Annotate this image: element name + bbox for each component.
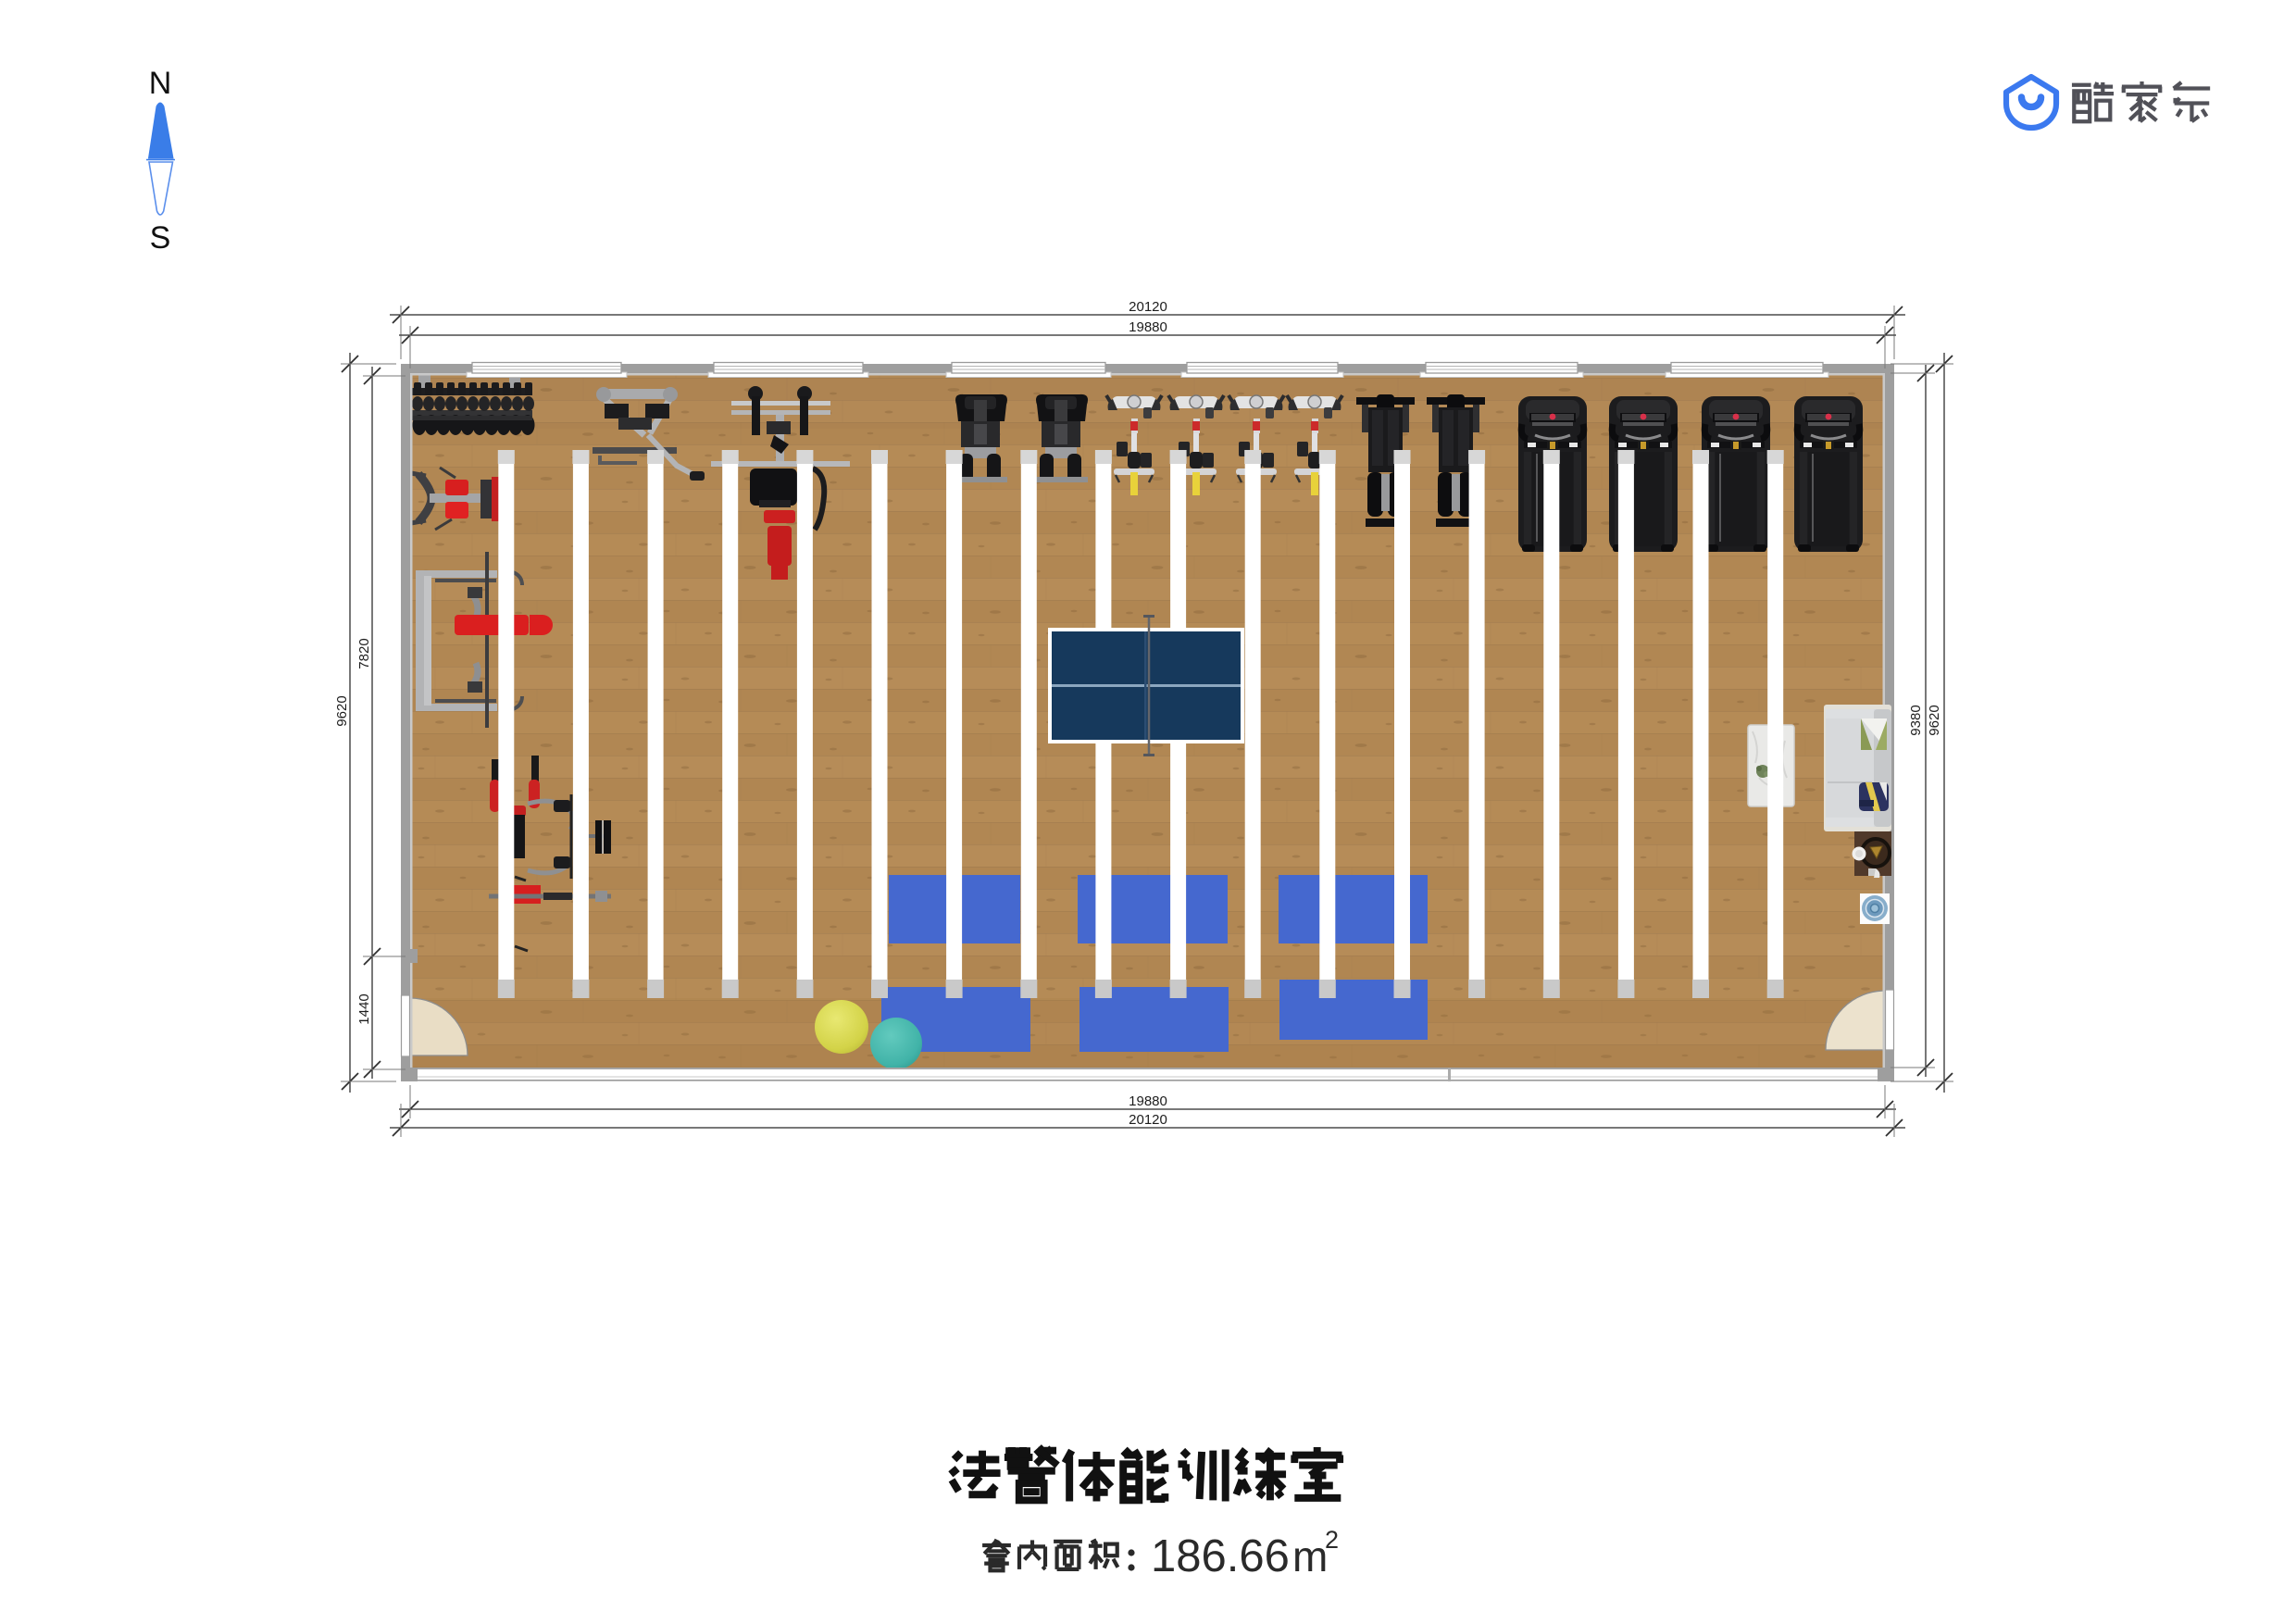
svg-text:9380: 9380 — [1908, 705, 1924, 735]
svg-text:19880: 19880 — [1129, 1093, 1167, 1109]
svg-text:20120: 20120 — [1129, 299, 1167, 315]
svg-text:S: S — [150, 220, 171, 256]
svg-text:19880: 19880 — [1129, 319, 1167, 335]
svg-text:N: N — [149, 66, 172, 101]
svg-text:m: m — [1292, 1532, 1328, 1580]
svg-text:186.66: 186.66 — [1151, 1531, 1290, 1581]
svg-text:1440: 1440 — [356, 993, 372, 1024]
svg-text:7820: 7820 — [356, 638, 372, 668]
svg-text:2: 2 — [1325, 1526, 1339, 1554]
svg-text:9620: 9620 — [334, 695, 350, 726]
svg-text:20120: 20120 — [1129, 1112, 1167, 1128]
svg-text:9620: 9620 — [1927, 705, 1942, 735]
